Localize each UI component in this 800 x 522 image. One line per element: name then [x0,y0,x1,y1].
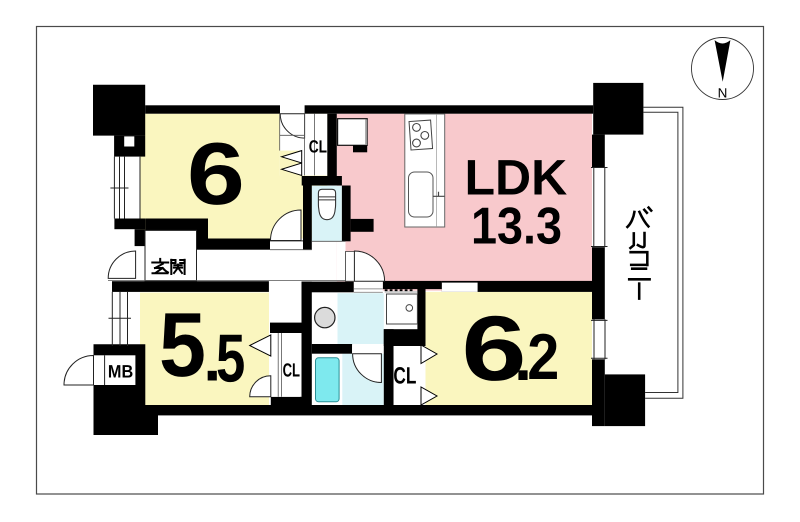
svg-text:CL: CL [309,137,327,157]
svg-text:5: 5 [216,321,245,397]
svg-text:13.3: 13.3 [471,197,562,255]
svg-text:6: 6 [187,124,245,223]
svg-text:5: 5 [159,295,206,396]
svg-text:MB: MB [108,361,133,381]
svg-text:N: N [718,86,728,101]
svg-text:2: 2 [527,320,559,393]
svg-text:CL: CL [393,363,416,389]
svg-text:CL: CL [283,360,301,381]
